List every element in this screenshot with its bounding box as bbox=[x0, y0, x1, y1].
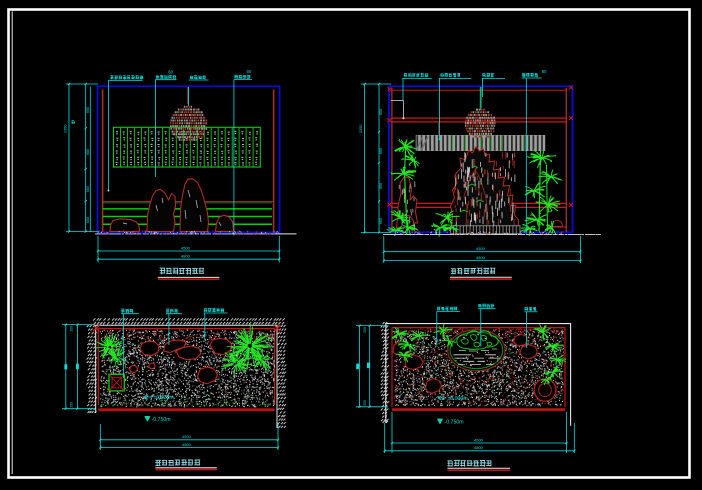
svg-text:650: 650 bbox=[86, 186, 90, 192]
svg-text:200: 200 bbox=[70, 402, 74, 408]
svg-text:4800: 4800 bbox=[476, 255, 486, 260]
svg-text:650: 650 bbox=[379, 148, 383, 154]
svg-text:650: 650 bbox=[86, 107, 90, 113]
svg-text:60: 60 bbox=[542, 69, 547, 74]
svg-text:650: 650 bbox=[86, 217, 90, 223]
svg-text:650: 650 bbox=[86, 149, 90, 155]
svg-text:4800: 4800 bbox=[474, 445, 484, 450]
svg-text:4500: 4500 bbox=[182, 434, 192, 439]
svg-text:200: 200 bbox=[363, 400, 367, 406]
svg-text:2350: 2350 bbox=[64, 125, 68, 133]
svg-text:650: 650 bbox=[379, 218, 383, 224]
svg-text:60: 60 bbox=[168, 69, 173, 74]
svg-text:60: 60 bbox=[247, 69, 252, 74]
svg-text:4800: 4800 bbox=[181, 254, 191, 259]
svg-text:-0.750m: -0.750m bbox=[152, 417, 171, 423]
svg-text:4500: 4500 bbox=[476, 246, 486, 251]
svg-text:-0.750m: -0.750m bbox=[445, 420, 464, 426]
svg-text:650: 650 bbox=[379, 109, 383, 115]
svg-text:4500: 4500 bbox=[181, 245, 191, 250]
svg-text:±0.000m: ±0.000m bbox=[154, 395, 174, 401]
svg-text:650: 650 bbox=[379, 183, 383, 189]
svg-text:200: 200 bbox=[70, 326, 74, 332]
svg-text:2350: 2350 bbox=[359, 125, 363, 133]
svg-text:4800: 4800 bbox=[182, 442, 192, 447]
svg-text:4500: 4500 bbox=[474, 437, 484, 442]
svg-text:200: 200 bbox=[363, 327, 367, 333]
svg-text:±0.000m: ±0.000m bbox=[448, 396, 468, 402]
